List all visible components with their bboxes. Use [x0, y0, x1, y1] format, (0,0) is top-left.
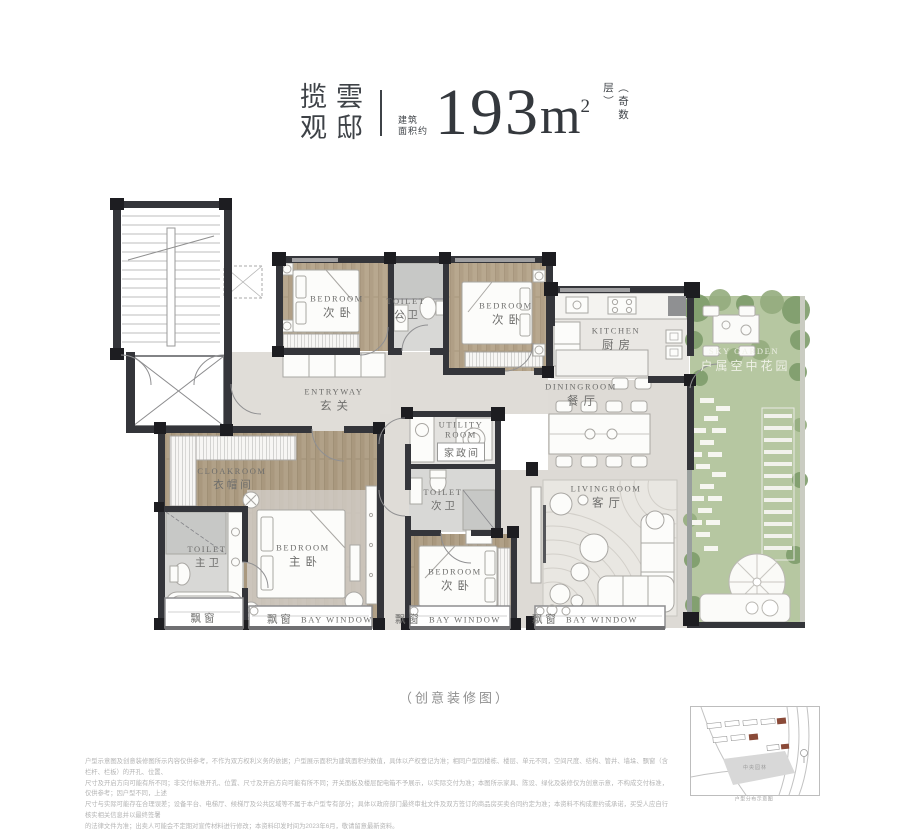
site-plan-map: 中央园林 [690, 706, 820, 796]
site-plan-caption: 户型分布示意图 [735, 796, 774, 803]
disclaimer-line: 的法律文件为准；出卖人可能会不定期对宣传材料进行修改；本资料印发时间为2023年… [85, 822, 668, 832]
room-label-bedroom-north-right: BEDROOM 次卧 [479, 301, 533, 328]
room-label-master-toilet: TOILET 主卫 [187, 544, 226, 570]
site-plan-drawing: 中央园林 [691, 707, 819, 795]
bay-window-label-master: 飘窗 BAY WINDOW [267, 612, 373, 627]
bay-window-label-south: 飘窗 BAY WINDOW [395, 612, 501, 627]
disclaimer-line: 尺寸与实际可能存在合理误差；设备平台、电梯厅、候梯厅及公共区域等不属于本户型专有… [85, 800, 668, 822]
room-label-second-toilet: TOILET 次卫 [423, 487, 462, 513]
disclaimer-line: 尺寸及开启方向可能有所不同；非交付标准开孔、位置、尺寸及开启方向可能有所不同；开… [85, 779, 668, 801]
room-label-kitchen: KITCHEN 厨房 [592, 326, 641, 353]
bay-window-label-west: 飘窗 [191, 611, 218, 626]
bay-window-label-living: 飘窗 BAY WINDOW [532, 612, 638, 627]
room-label-dining-room: DININGROOM 餐厅 [545, 382, 617, 409]
room-label-utility-room: UTILITY ROOM 家政间 [433, 421, 489, 462]
room-label-master-bedroom: BEDROOM 主卧 [276, 543, 330, 570]
site-plan-area-label: 中央园林 [743, 764, 767, 771]
room-label-entryway: ENTRYWAY 玄关 [304, 387, 363, 414]
room-label-living-room: LIVINGROOM 客厅 [571, 484, 642, 511]
room-label-public-toilet: TOILET 公卫 [386, 296, 425, 322]
room-label-bedroom-south: BEDROOM 次卧 [428, 567, 482, 594]
room-label-sky-garden: SKY GARDEN 户属空中花园 [697, 346, 790, 374]
room-label-cloakroom: CLOAKROOM 衣帽间 [197, 466, 266, 492]
tree-icon [801, 750, 808, 764]
disclaimer-text: 户型示意图及创意装修图所示内容仅供参考，不作为双方权利义务的依据；户型展示面积为… [85, 757, 668, 832]
disclaimer-line: 户型示意图及创意装修图所示内容仅供参考，不作为双方权利义务的依据；户型展示面积为… [85, 757, 668, 779]
room-label-bedroom-north-left: BEDROOM 次卧 [310, 294, 364, 321]
floor-plan-page: 揽雲 观邸 建筑 面积约 193m2 （奇数层） [0, 0, 909, 832]
plan-caption: （创意装修图） [399, 688, 511, 707]
